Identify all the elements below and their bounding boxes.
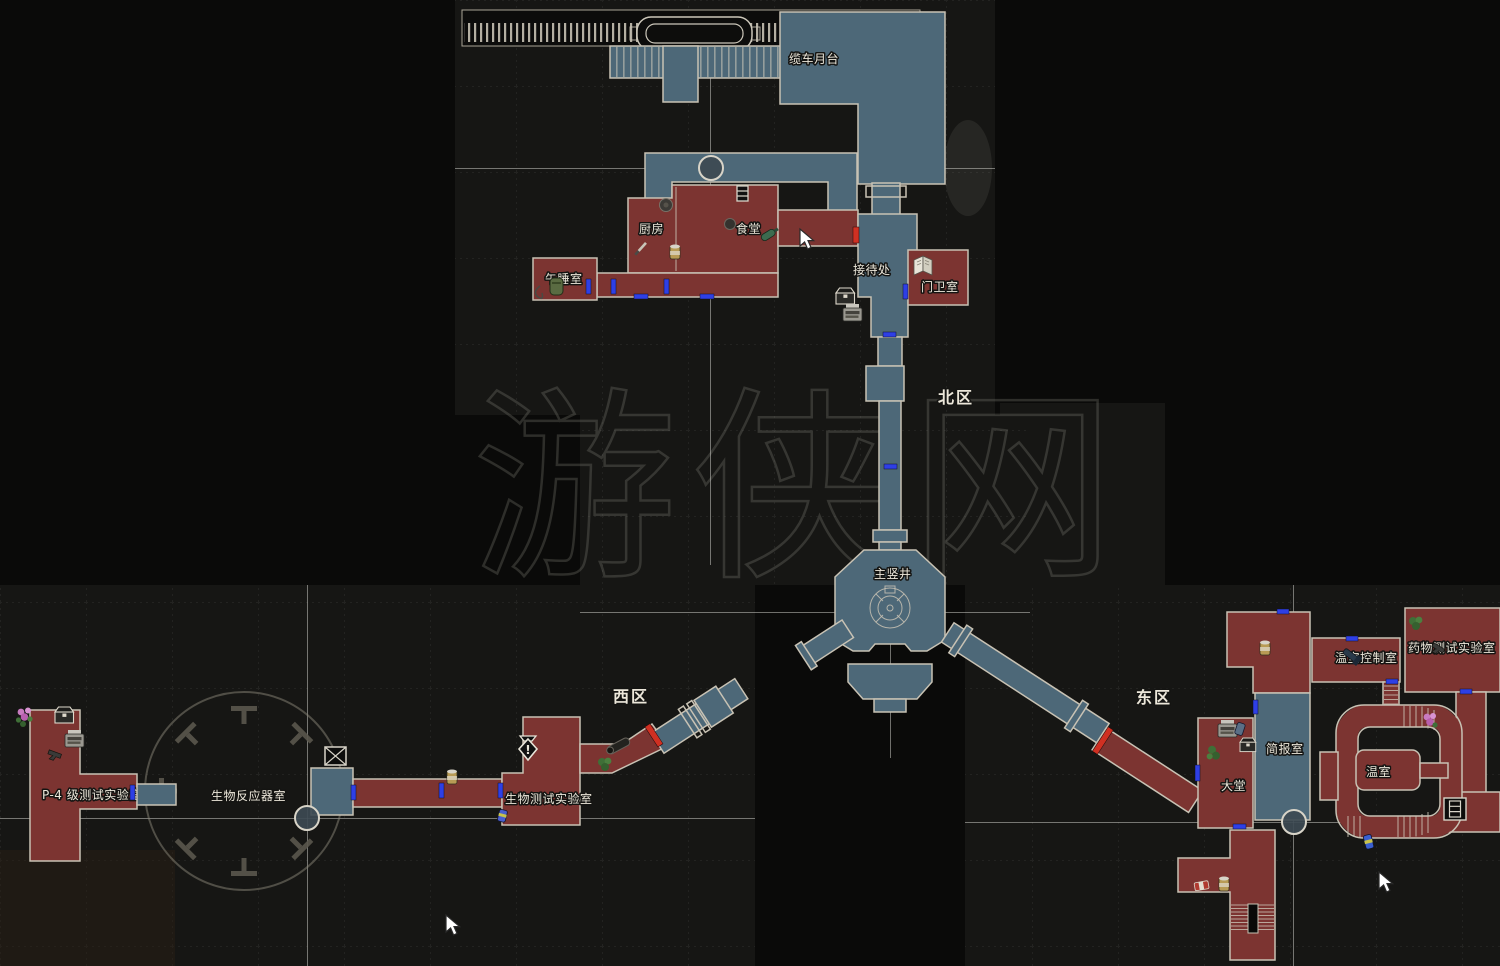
p4-entry-walkway: [137, 784, 176, 805]
reception-corridor: [778, 210, 858, 246]
shaft-corridor-1: [878, 337, 902, 366]
pot-icon: [660, 199, 673, 212]
shaft-corridor-3: [879, 542, 901, 550]
label-guard-room: 门卫室: [921, 279, 959, 294]
elevator-ping-west: [295, 806, 319, 830]
label-region-north: 北区: [938, 388, 974, 407]
room-briefing: [1255, 693, 1310, 820]
pouch-icon: [550, 278, 563, 295]
exclamation-glyph: !: [525, 743, 530, 757]
elevator-ping-north: [699, 156, 723, 180]
bowl-icon: [725, 219, 736, 230]
can-icon: [1219, 877, 1229, 892]
label-drug-test-lab: 药物测试实验室: [1408, 640, 1496, 655]
cable-car: [630, 17, 760, 50]
label-bioreactor-room: 生物反应器室: [211, 788, 286, 803]
label-kitchen: 厨房: [639, 221, 664, 236]
label-bio-test-lab: 生物测试实验室: [505, 791, 593, 806]
item-box-icon: [55, 707, 74, 723]
label-region-west: 西区: [613, 687, 649, 706]
can-icon: [670, 245, 680, 260]
south-corridor: [597, 273, 778, 297]
label-main-shaft: 主竖井: [874, 567, 912, 581]
item-box-icon: [1240, 738, 1256, 752]
item-box-icon: [836, 288, 855, 304]
lift-icon: [325, 747, 346, 765]
label-region-east: 东区: [1136, 688, 1172, 707]
platform-exit-corridor: [872, 183, 900, 215]
elevator-ping-east: [1282, 810, 1306, 834]
panel-stain: [0, 850, 175, 966]
can-icon: [1260, 641, 1270, 656]
bioreactor-walkway-room: [311, 768, 353, 815]
lab-map-screenshot: 游侠网 缆车月台 厨房: [0, 0, 1500, 966]
shaft-corridor-landing: [866, 366, 904, 401]
ladder-icon: [737, 186, 748, 201]
label-greenhouse: 温室: [1366, 764, 1391, 779]
label-briefing-room: 简报室: [1266, 741, 1304, 756]
shaft-corridor-flange: [873, 530, 907, 542]
shaft-south-bay: [848, 664, 932, 699]
greenhouse-right-stub: [1420, 763, 1448, 778]
label-cable-car-platform: 缆车月台: [789, 51, 839, 66]
lab-map: 游侠网 缆车月台 厨房: [0, 0, 1500, 966]
label-cafeteria: 食堂: [736, 221, 761, 236]
ladder-icon: [1444, 798, 1466, 820]
platform-stripes: [611, 47, 789, 77]
shaft-south-stub: [874, 699, 906, 712]
label-p4-test-lab: P-4 级测试实验室: [42, 787, 142, 802]
site-watermark: 游侠网: [472, 371, 1129, 609]
label-lobby: 大堂: [1221, 779, 1246, 793]
can-icon: [447, 770, 457, 785]
platform-landing: [663, 46, 698, 102]
west-corridor: [353, 779, 502, 807]
label-reception: 接待处: [853, 262, 891, 277]
greenhouse-left-alcove: [1320, 752, 1338, 800]
